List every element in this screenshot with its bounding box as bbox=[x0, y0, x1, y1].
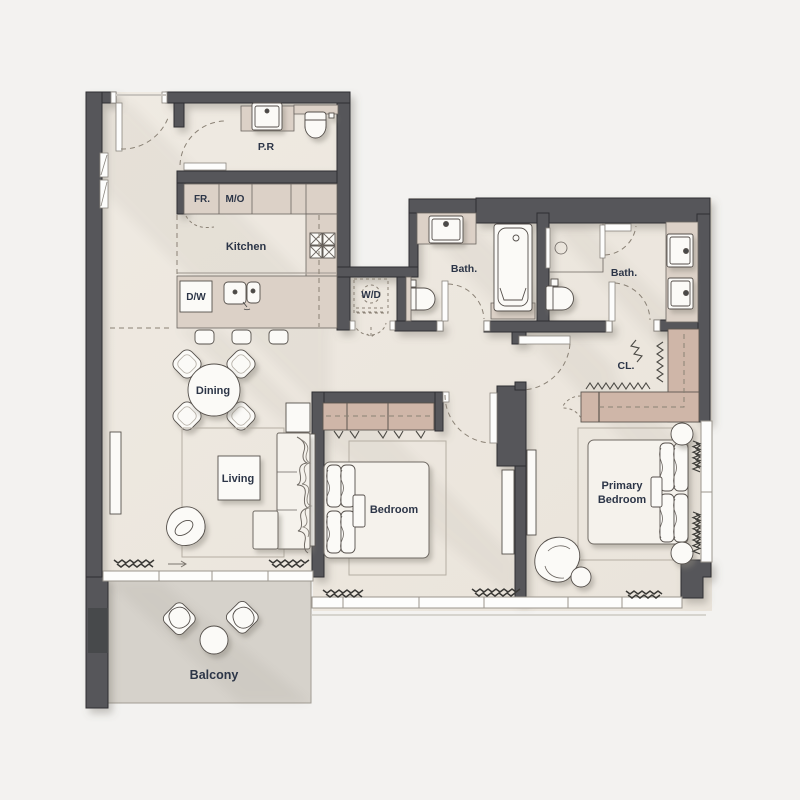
svg-text:Bath.: Bath. bbox=[451, 263, 477, 275]
svg-text:P.R: P.R bbox=[258, 141, 275, 153]
svg-text:W/D: W/D bbox=[361, 290, 380, 301]
svg-text:CL.: CL. bbox=[618, 360, 635, 372]
svg-text:Primary: Primary bbox=[602, 480, 644, 492]
svg-text:M/O: M/O bbox=[226, 194, 245, 205]
svg-text:D/W: D/W bbox=[186, 292, 206, 303]
svg-text:Bedroom: Bedroom bbox=[598, 494, 647, 506]
svg-text:Living: Living bbox=[222, 473, 254, 485]
svg-text:Kitchen: Kitchen bbox=[226, 241, 267, 253]
svg-text:Bedroom: Bedroom bbox=[370, 504, 419, 516]
svg-text:Bath.: Bath. bbox=[611, 267, 637, 279]
svg-text:Dining: Dining bbox=[196, 385, 230, 397]
svg-text:Balcony: Balcony bbox=[190, 668, 239, 682]
svg-text:FR.: FR. bbox=[194, 194, 210, 205]
